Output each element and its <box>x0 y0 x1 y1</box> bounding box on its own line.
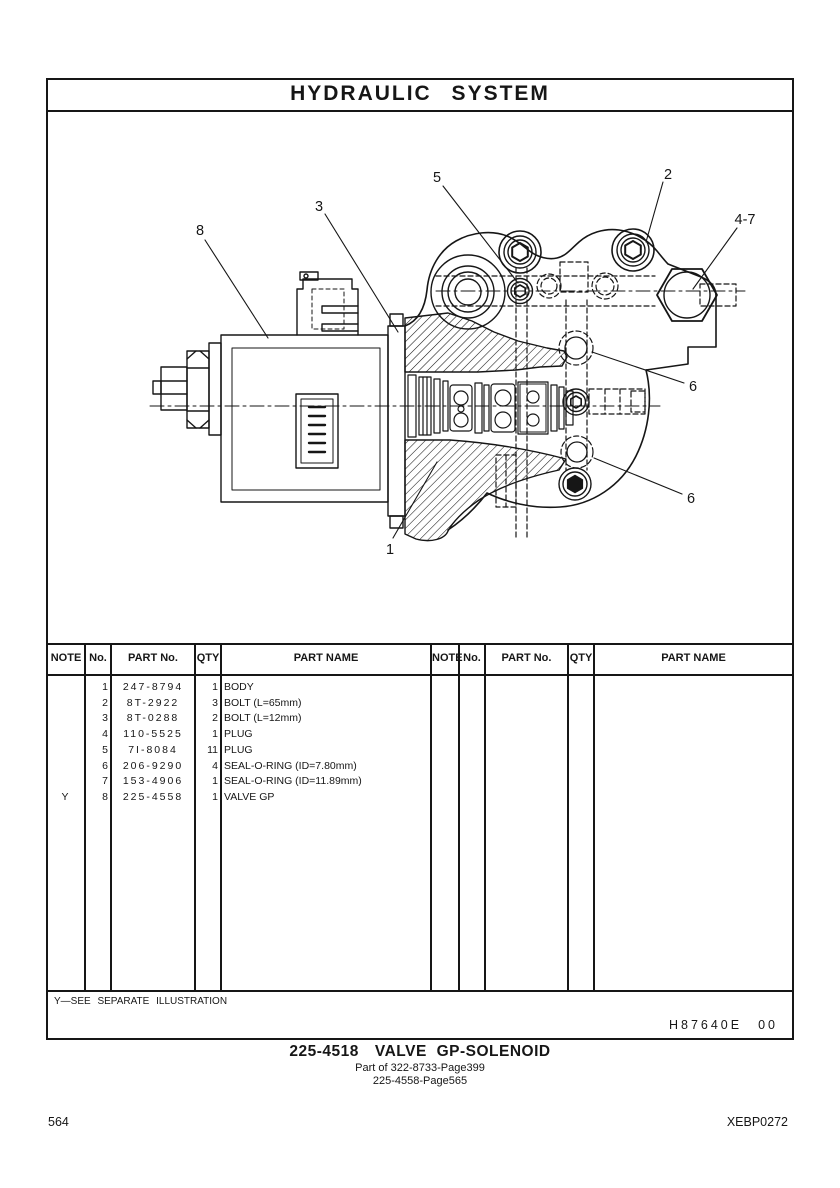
cell-qty: 1 <box>196 791 218 803</box>
cell-no: 5 <box>86 744 108 756</box>
callout-6-upper: 6 <box>689 379 697 395</box>
cell-qty: 2 <box>196 712 218 724</box>
page-number: 564 <box>48 1115 69 1129</box>
callout-1: 1 <box>386 542 394 558</box>
caption-subline-2: 225-4558-Page565 <box>0 1075 840 1087</box>
cell-qty: 11 <box>196 744 218 756</box>
cell-no: 3 <box>86 712 108 724</box>
col-header-qty: QTY <box>196 652 220 664</box>
cell-part-no: 153-4906 <box>112 775 194 787</box>
cell-part-no: 110-5525 <box>112 728 194 740</box>
callout-8: 8 <box>196 223 204 239</box>
cell-no: 6 <box>86 760 108 772</box>
caption-subline-1: Part of 322-8733-Page399 <box>0 1062 840 1074</box>
col-header-part-name: PART NAME <box>222 652 430 664</box>
cell-part-name: VALVE GP <box>224 791 428 803</box>
figure-caption: 225-4518VALVE GP-SOLENOID Part of 322-87… <box>0 1043 840 1087</box>
large-hex-plug <box>657 269 736 321</box>
col-header-part-no-2: PART No. <box>486 652 567 664</box>
cell-no: 7 <box>86 775 108 787</box>
cell-part-name: SEAL-O-RING (ID=11.89mm) <box>224 775 428 787</box>
parts-table: NOTE No. PART No. QTY PART NAME NOTE No.… <box>48 643 792 992</box>
title-band: HYDRAULIC SYSTEM <box>46 78 794 112</box>
footnote-text: Y—SEE SEPARATE ILLUSTRATION <box>54 996 227 1007</box>
callout-4-7: 4-7 <box>735 212 756 228</box>
table-row: 2 8T-2922 3 BOLT (L=65mm) <box>48 697 792 712</box>
cell-qty: 1 <box>196 775 218 787</box>
port-boss <box>431 255 505 329</box>
col-header-no-2: No. <box>460 652 484 664</box>
table-row: 4 110-5525 1 PLUG <box>48 728 792 743</box>
footnote-row: Y—SEE SEPARATE ILLUSTRATION H87640E00 <box>48 990 792 1038</box>
solenoid-label <box>296 394 338 468</box>
drawing-ref: H87640E00 <box>669 1018 778 1032</box>
adapter-plate <box>388 314 405 528</box>
caption-part-number: 225-4518 <box>289 1043 359 1060</box>
cell-qty: 4 <box>196 760 218 772</box>
callout-5: 5 <box>433 170 441 186</box>
callout-2: 2 <box>664 167 672 183</box>
cell-qty: 1 <box>196 728 218 740</box>
table-row: 1 247-8794 1 BODY <box>48 681 792 696</box>
solenoid-assembly <box>153 272 388 502</box>
cell-part-name: BOLT (L=12mm) <box>224 712 428 724</box>
col-header-note-2: NOTE <box>432 652 458 664</box>
drawing-ref-rev: 00 <box>758 1018 778 1032</box>
table-row: 7 153-4906 1 SEAL-O-RING (ID=11.89mm) <box>48 775 792 790</box>
side-fitting <box>563 389 645 415</box>
table-row: 6 206-9290 4 SEAL-O-RING (ID=7.80mm) <box>48 760 792 775</box>
cell-part-no: 8T-0288 <box>112 712 194 724</box>
col-header-part-no: PART No. <box>112 652 194 664</box>
cell-part-no: 225-4558 <box>112 791 194 803</box>
cell-part-no: 247-8794 <box>112 681 194 693</box>
header-divider <box>48 674 792 676</box>
catalog-page: HYDRAULIC SYSTEM <box>0 0 840 1188</box>
col-header-note: NOTE <box>48 652 84 664</box>
cell-no: 1 <box>86 681 108 693</box>
document-code: XEBP0272 <box>727 1115 788 1129</box>
table-row: 3 8T-0288 2 BOLT (L=12mm) <box>48 712 792 727</box>
cell-part-name: BODY <box>224 681 428 693</box>
lower-bolt <box>559 468 591 500</box>
caption-part-name: VALVE GP-SOLENOID <box>375 1043 551 1060</box>
callout-3: 3 <box>315 199 323 215</box>
cell-qty: 1 <box>196 681 218 693</box>
callout-6-lower: 6 <box>687 491 695 507</box>
figure-drawing: 8 3 5 2 4-7 6 6 1 <box>46 110 794 643</box>
solenoid-connector <box>297 272 358 335</box>
cell-part-name: PLUG <box>224 744 428 756</box>
seal-o-ring-upper <box>559 331 593 365</box>
cell-part-no: 8T-2922 <box>112 697 194 709</box>
cell-qty: 3 <box>196 697 218 709</box>
cell-no: 4 <box>86 728 108 740</box>
cell-part-name: SEAL-O-RING (ID=7.80mm) <box>224 760 428 772</box>
cell-no: 2 <box>86 697 108 709</box>
col-header-qty-2: QTY <box>569 652 593 664</box>
page-title: HYDRAULIC SYSTEM <box>290 82 550 106</box>
cell-no: 8 <box>86 791 108 803</box>
col-header-part-name-2: PART NAME <box>595 652 792 664</box>
cell-part-name: PLUG <box>224 728 428 740</box>
cell-part-no: 7I-8084 <box>112 744 194 756</box>
table-row: 5 7I-8084 11 PLUG <box>48 744 792 759</box>
col-header-no: No. <box>86 652 110 664</box>
cell-note: Y <box>48 791 82 803</box>
cell-part-name: BOLT (L=65mm) <box>224 697 428 709</box>
table-row: Y 8 225-4558 1 VALVE GP <box>48 791 792 806</box>
mounting-bolt-right <box>617 234 649 266</box>
cell-part-no: 206-9290 <box>112 760 194 772</box>
drawing-ref-code: H87640E <box>669 1018 742 1032</box>
